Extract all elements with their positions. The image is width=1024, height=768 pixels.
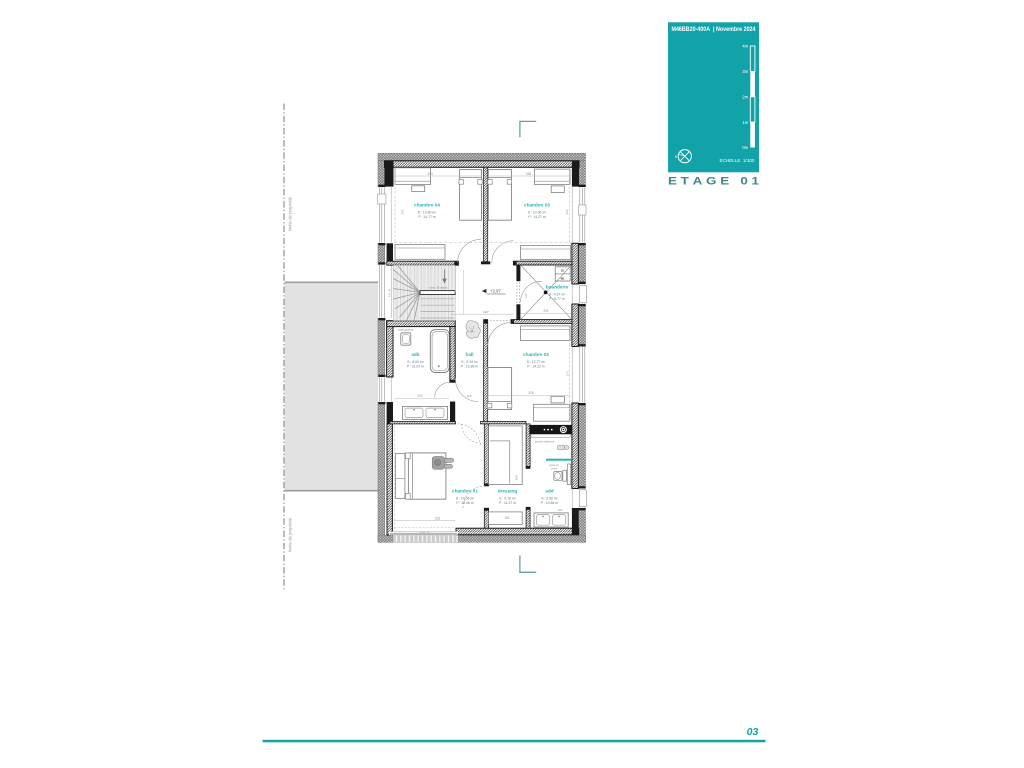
svg-text:343: 343 [565,209,569,214]
svg-text:S : 4.16 m²: S : 4.16 m² [499,496,516,500]
svg-text:chambre 04: chambre 04 [414,203,440,208]
svg-text:P : 14.77 m: P : 14.77 m [418,215,435,219]
svg-text:326: 326 [528,391,534,395]
svg-text:chambre 03: chambre 03 [524,203,550,208]
svg-text:buanderie: buanderie [546,285,569,290]
svg-text:P : 6.77 m: P : 6.77 m [549,297,565,301]
svg-text:dressing: dressing [498,489,518,494]
svg-text:S : 13.36 m²: S : 13.36 m² [528,210,547,214]
svg-text:M.N. 76: M.N. 76 [420,531,430,535]
svg-text:1m: 1m [742,120,748,125]
svg-text:ML: ML [561,276,565,280]
svg-text:S : 14.06 m²: S : 14.06 m² [456,496,475,500]
svg-text:162: 162 [558,508,563,512]
svg-text:S : 8.00 m²: S : 8.00 m² [407,360,424,364]
svg-text:P : 14.22 m: P : 14.22 m [527,365,544,369]
svg-text:220: 220 [417,394,423,398]
svg-text:P : 15.06 m: P : 15.06 m [456,501,473,505]
svg-text:mont. 18 march.: mont. 18 march. [429,286,448,290]
svg-text:201: 201 [543,309,549,313]
svg-text:3m: 3m [742,69,748,74]
svg-text:M46BB20-400A | Novembre 2024: M46BB20-400A | Novembre 2024 [672,27,757,33]
svg-text:2m: 2m [742,95,748,100]
svg-text:333: 333 [435,516,441,520]
svg-text:S : 12.77 m²: S : 12.77 m² [527,360,546,364]
svg-text:hall: hall [465,352,473,357]
svg-text:verre: verre [551,466,557,470]
svg-text:P : 16.89 m: P : 16.89 m [461,365,478,369]
svg-text:03: 03 [747,726,759,738]
svg-text:+2.97: +2.97 [490,288,501,293]
svg-text:333: 333 [427,172,433,176]
svg-text:151: 151 [504,516,510,520]
svg-text:328: 328 [526,172,532,176]
svg-text:limite de propriété: limite de propriété [288,517,293,552]
svg-text:0m: 0m [742,145,748,150]
svg-text:376: 376 [566,371,570,376]
svg-text:405: 405 [514,475,518,480]
svg-text:S : 9.34 m²: S : 9.34 m² [461,360,478,364]
svg-text:P : 10.84 m: P : 10.84 m [541,501,558,505]
svg-text:E T A G E 0 1: E T A G E 0 1 [668,175,759,187]
svg-text:SL: SL [561,269,565,273]
svg-text:S : 3.96 m²: S : 3.96 m² [541,496,558,500]
svg-text:4.4 76: 4.4 76 [388,288,392,296]
svg-text:113°: 113° [467,394,474,398]
svg-text:4m: 4m [742,44,748,49]
svg-text:douche italienne: douche italienne [535,440,555,444]
svg-text:343: 343 [401,209,405,214]
svg-text:P : 11.67 m: P : 11.67 m [407,365,424,369]
svg-text:S : 4.67 m²: S : 4.67 m² [549,292,566,296]
svg-text:ECHELLE 1/100: ECHELLE 1/100 [720,158,755,163]
svg-text:S : 13.80 m²: S : 13.80 m² [418,210,437,214]
svg-text:limite de propriété: limite de propriété [288,196,293,231]
svg-text:211°: 211° [524,291,528,298]
svg-text:sdd: sdd [545,489,553,494]
svg-text:P : 11.27 m: P : 11.27 m [499,501,516,505]
svg-text:chambre 01: chambre 01 [452,489,478,494]
svg-text:198°: 198° [483,310,490,314]
svg-text:P : 14.27 m: P : 14.27 m [528,215,545,219]
svg-text:chambre 02: chambre 02 [523,352,549,357]
svg-text:sdb: sdb [411,352,419,357]
